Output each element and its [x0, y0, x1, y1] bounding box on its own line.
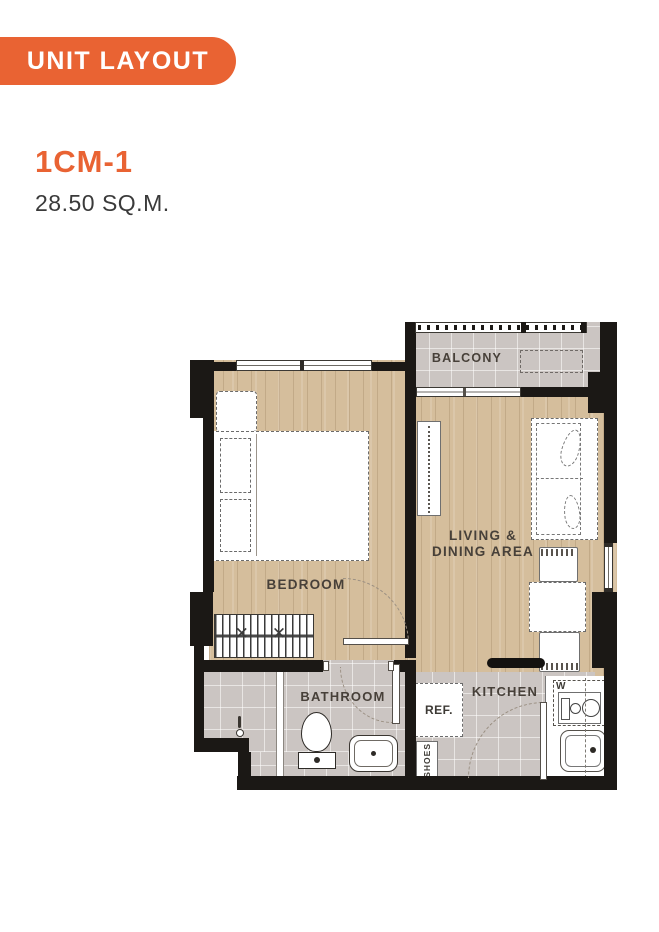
wall	[203, 418, 214, 592]
tv-console-line	[428, 426, 430, 513]
unit-code: 1CM-1	[35, 144, 133, 180]
refrigerator: REF.	[415, 683, 463, 737]
counter-bench	[487, 658, 545, 668]
door-jamb	[388, 661, 394, 671]
faucet-icon	[590, 747, 596, 753]
bedroom-window	[236, 360, 372, 371]
wall	[190, 592, 213, 646]
sofa	[531, 418, 598, 540]
wall	[604, 413, 617, 543]
wall	[521, 387, 607, 397]
stove	[558, 692, 601, 724]
washer-label: W	[556, 681, 565, 692]
dining-chair	[539, 632, 580, 672]
bedroom-door	[343, 638, 409, 645]
unit-layout-banner: UNIT LAYOUT	[0, 37, 236, 85]
bed	[211, 431, 369, 561]
hanger-cross-icon: ✕	[272, 624, 286, 644]
living-window	[604, 543, 613, 592]
wall	[405, 322, 416, 658]
wardrobe: ✕ ✕	[214, 614, 314, 658]
washer-stove-unit: W	[553, 680, 605, 726]
dining-table	[529, 582, 586, 632]
toilet	[298, 712, 336, 772]
bathroom-sink-drain	[371, 751, 376, 756]
stove-knobs	[561, 698, 570, 720]
shoe-cabinet-label: SHOES	[422, 743, 432, 778]
cabinet-dash-line	[585, 678, 586, 778]
entrance-door	[540, 702, 547, 780]
wall	[202, 660, 323, 672]
wall	[600, 322, 617, 372]
room-label-living-line1: LIVING &	[432, 528, 534, 544]
unit-area: 28.50 SQ.M.	[35, 190, 170, 217]
pillow	[220, 438, 251, 493]
room-label-balcony: BALCONY	[432, 350, 502, 366]
wall	[237, 776, 617, 790]
bathroom-sink	[349, 735, 398, 772]
room-label-living-line2: DINING AREA	[432, 544, 534, 560]
toilet-flush-icon	[314, 757, 320, 763]
refrigerator-label: REF.	[425, 703, 453, 717]
floorplan: ✕ ✕ REF. SHOES W	[185, 310, 625, 790]
balcony-sliding-door	[416, 387, 521, 397]
room-label-bathroom: BATHROOM	[300, 689, 385, 705]
pillow	[220, 499, 251, 552]
room-label-kitchen: KITCHEN	[472, 684, 538, 700]
shower-partition	[276, 662, 284, 788]
ac-unit-space	[520, 350, 583, 373]
wall	[405, 672, 416, 785]
tv-console	[417, 421, 441, 516]
wall	[592, 592, 617, 668]
room-label-bedroom: BEDROOM	[267, 577, 346, 593]
bathroom-door	[392, 664, 400, 724]
hanger-cross-icon: ✕	[235, 624, 249, 644]
room-label-living: LIVING & DINING AREA	[432, 528, 534, 560]
shoe-cabinet: SHOES	[416, 741, 438, 779]
sofa-divider	[536, 478, 583, 479]
dining-chair	[539, 547, 578, 582]
toilet-bowl	[301, 712, 332, 752]
door-jamb	[323, 661, 329, 671]
bedside-table	[216, 391, 257, 432]
unit-layout-banner-label: UNIT LAYOUT	[27, 47, 209, 76]
wall	[205, 362, 238, 371]
wall	[604, 660, 617, 790]
bed-sheet-line	[256, 434, 257, 556]
wall	[370, 362, 407, 371]
burner-small-icon	[570, 703, 581, 714]
balcony-railing	[415, 322, 587, 333]
wall	[194, 738, 249, 752]
kitchen-sink	[560, 730, 606, 772]
